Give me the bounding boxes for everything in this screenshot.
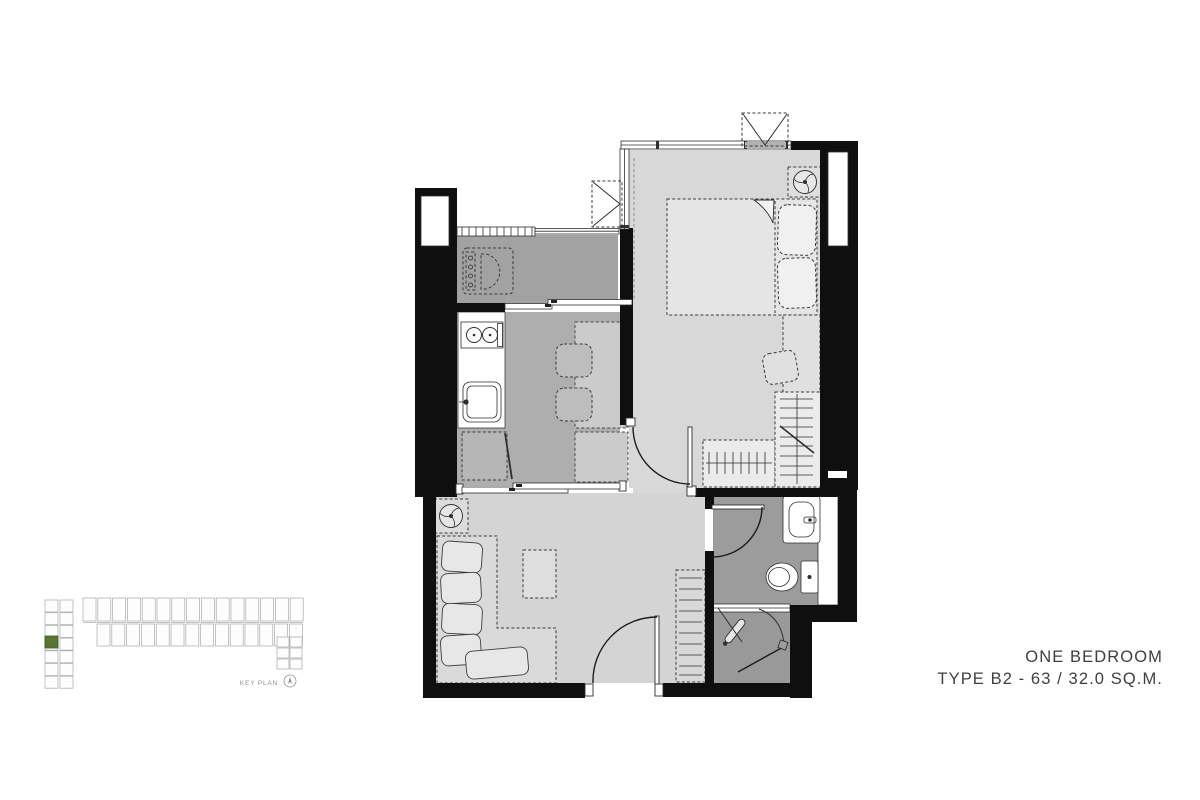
sofa-cushion	[441, 541, 483, 574]
door-leaf	[688, 427, 692, 487]
key-plan-unit	[98, 598, 111, 621]
wall	[790, 622, 812, 698]
key-plan: KEY PLAN	[45, 598, 303, 688]
balcony-floor	[457, 235, 618, 303]
door-leaf	[655, 616, 659, 684]
key-plan-unit	[142, 598, 155, 621]
key-plan-unit	[156, 624, 169, 646]
key-plan-unit	[290, 598, 303, 621]
hallway	[676, 570, 705, 682]
key-plan-unit	[277, 659, 289, 669]
plumbing-strip	[818, 495, 838, 605]
window-left	[620, 149, 629, 229]
wall	[457, 303, 505, 312]
pillow	[777, 204, 817, 255]
key-plan-unit	[187, 598, 200, 621]
coffee-table	[523, 550, 556, 598]
key-plan-unit	[45, 600, 58, 612]
key-plan-unit	[230, 624, 243, 646]
wall	[791, 141, 823, 150]
key-plan-unit	[231, 598, 244, 621]
dining-chair	[556, 388, 592, 421]
hall-cabinet	[676, 570, 705, 682]
key-plan-unit	[60, 676, 73, 688]
key-plan-unit	[157, 598, 170, 621]
ac-condenser	[592, 181, 622, 227]
key-plan-unit	[141, 624, 154, 646]
key-plan-unit	[261, 598, 274, 621]
wardrobe-bottom	[703, 440, 775, 487]
key-plan-unit	[127, 598, 140, 621]
key-plan-unit	[45, 651, 58, 663]
key-plan-unit	[45, 676, 58, 688]
key-plan-highlight-unit	[45, 636, 58, 648]
plan-title: ONE BEDROOM	[937, 646, 1163, 668]
floor-plan-page: { "title": { "line1": "ONE BEDROOM", "li…	[0, 0, 1200, 800]
plan-subtitle: TYPE B2 - 63 / 32.0 SQ.M.	[937, 668, 1163, 690]
dining-chair	[556, 344, 592, 377]
key-plan-units	[45, 598, 303, 688]
shaft-niche	[828, 152, 848, 246]
plan-title-block: ONE BEDROOM TYPE B2 - 63 / 32.0 SQ.M.	[937, 646, 1163, 690]
wall	[790, 605, 857, 622]
key-plan-unit	[60, 600, 73, 612]
key-plan-unit	[45, 613, 58, 625]
key-plan-unit	[60, 651, 73, 663]
fan-coil-unit	[788, 167, 822, 197]
key-plan-unit	[201, 624, 214, 646]
faucet	[463, 399, 468, 404]
key-plan-unit	[97, 624, 110, 646]
dressing-stool	[762, 349, 800, 385]
key-plan-unit	[60, 638, 73, 650]
wall-slit	[828, 471, 847, 478]
key-plan-unit	[290, 648, 302, 658]
key-plan-unit	[290, 659, 302, 669]
key-plan-unit	[290, 637, 302, 647]
key-plan-unit	[277, 637, 289, 647]
key-plan-unit	[172, 598, 185, 621]
key-plan-unit	[113, 598, 126, 621]
key-plan-unit	[45, 664, 58, 676]
wall	[423, 497, 436, 698]
key-plan-unit	[112, 624, 125, 646]
key-plan-unit	[127, 624, 140, 646]
shaft-niche	[421, 196, 449, 246]
wall	[838, 497, 857, 605]
wardrobe-right	[775, 392, 821, 487]
key-plan-label: KEY PLAN	[240, 680, 278, 687]
wall	[695, 488, 857, 497]
key-plan-unit	[60, 625, 73, 637]
sofa-cushion	[465, 646, 529, 679]
key-plan-unit	[215, 624, 228, 646]
key-plan-unit	[186, 624, 199, 646]
wall	[705, 551, 714, 683]
key-plan-unit	[216, 598, 229, 621]
wall	[663, 683, 810, 697]
key-plan-unit	[260, 624, 273, 646]
balcony-railing	[457, 227, 619, 236]
key-plan-unit	[245, 624, 258, 646]
key-plan-unit	[60, 613, 73, 625]
faucet	[808, 518, 812, 522]
key-plan-unit	[275, 598, 288, 621]
dining-cabinet	[575, 432, 628, 482]
wall	[423, 683, 585, 698]
wash-basin	[783, 496, 820, 543]
key-plan-unit	[83, 598, 96, 621]
kitchen-sink	[459, 382, 501, 422]
key-plan-unit	[201, 598, 214, 621]
sofa-cushion	[441, 603, 483, 635]
north-arrow	[284, 675, 296, 687]
door-leaf	[712, 505, 764, 509]
key-plan-unit	[60, 664, 73, 676]
key-plan-unit	[171, 624, 184, 646]
stove	[461, 322, 503, 348]
floor-mat	[462, 432, 507, 480]
toilet	[766, 561, 818, 593]
key-plan-unit	[277, 648, 289, 658]
key-plan-unit	[246, 598, 259, 621]
sofa-cushion	[440, 572, 482, 604]
wall	[620, 228, 633, 425]
pillow	[777, 257, 817, 308]
fan-coil-unit	[434, 499, 468, 533]
